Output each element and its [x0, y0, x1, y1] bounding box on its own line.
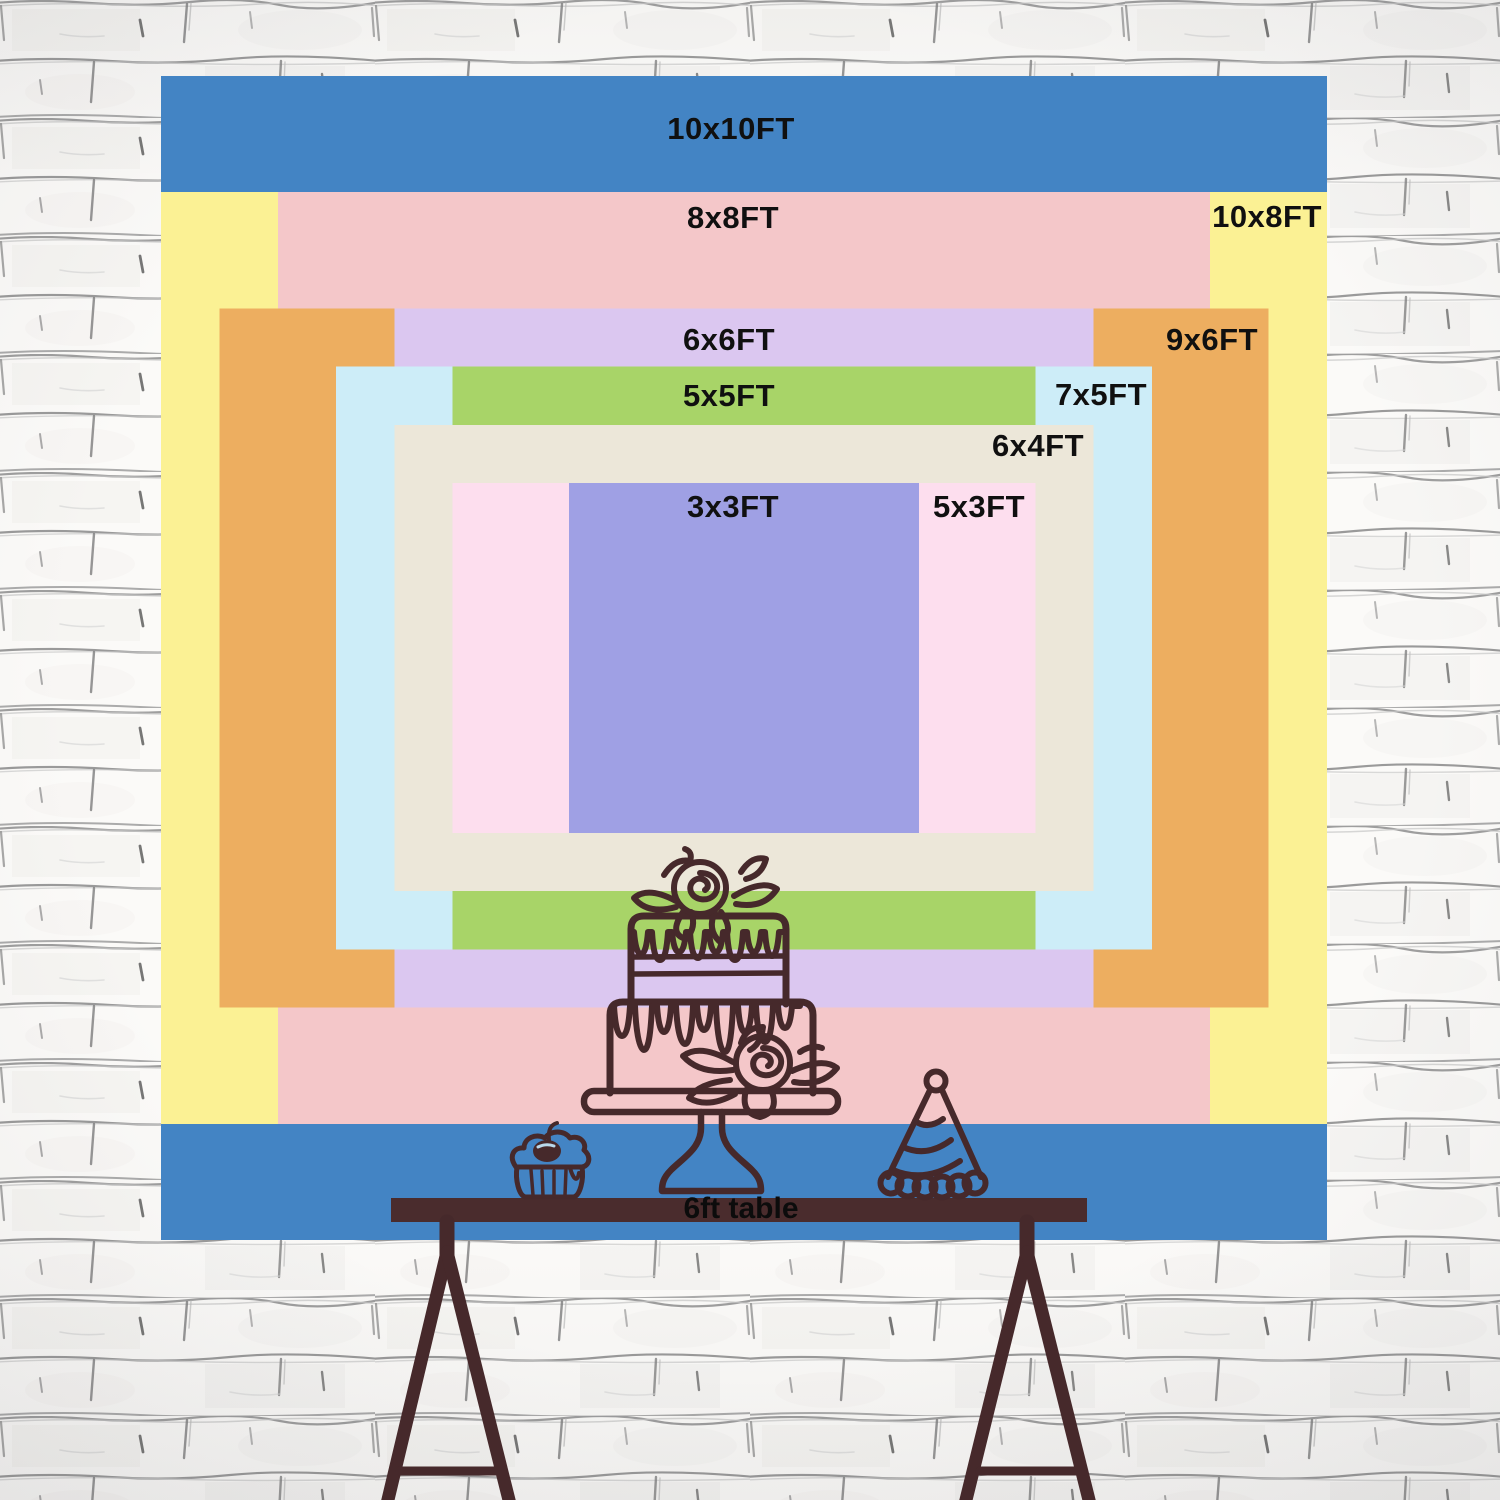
size-label-10x8ft: 10x8FT — [1212, 199, 1322, 235]
size-label-5x3ft: 5x3FT — [933, 489, 1025, 525]
size-label-9x6ft: 9x6FT — [1166, 322, 1258, 358]
table-size-label: 6ft table — [683, 1192, 798, 1226]
size-label-6x4ft: 6x4FT — [992, 428, 1084, 464]
size-label-10x10ft: 10x10FT — [667, 111, 795, 147]
size-label-8x8ft: 8x8FT — [687, 200, 779, 236]
size-label-5x5ft: 5x5FT — [683, 378, 775, 414]
size-label-7x5ft: 7x5FT — [1055, 377, 1147, 413]
size-label-6x6ft: 6x6FT — [683, 322, 775, 358]
backdrop-size-chart — [161, 76, 1327, 1240]
layer-3x3ft — [569, 483, 919, 833]
size-label-3x3ft: 3x3FT — [687, 489, 779, 525]
size-chart-scene: 10x10FT 8x8FT 10x8FT 6x6FT 9x6FT 5x5FT 7… — [0, 0, 1500, 1500]
